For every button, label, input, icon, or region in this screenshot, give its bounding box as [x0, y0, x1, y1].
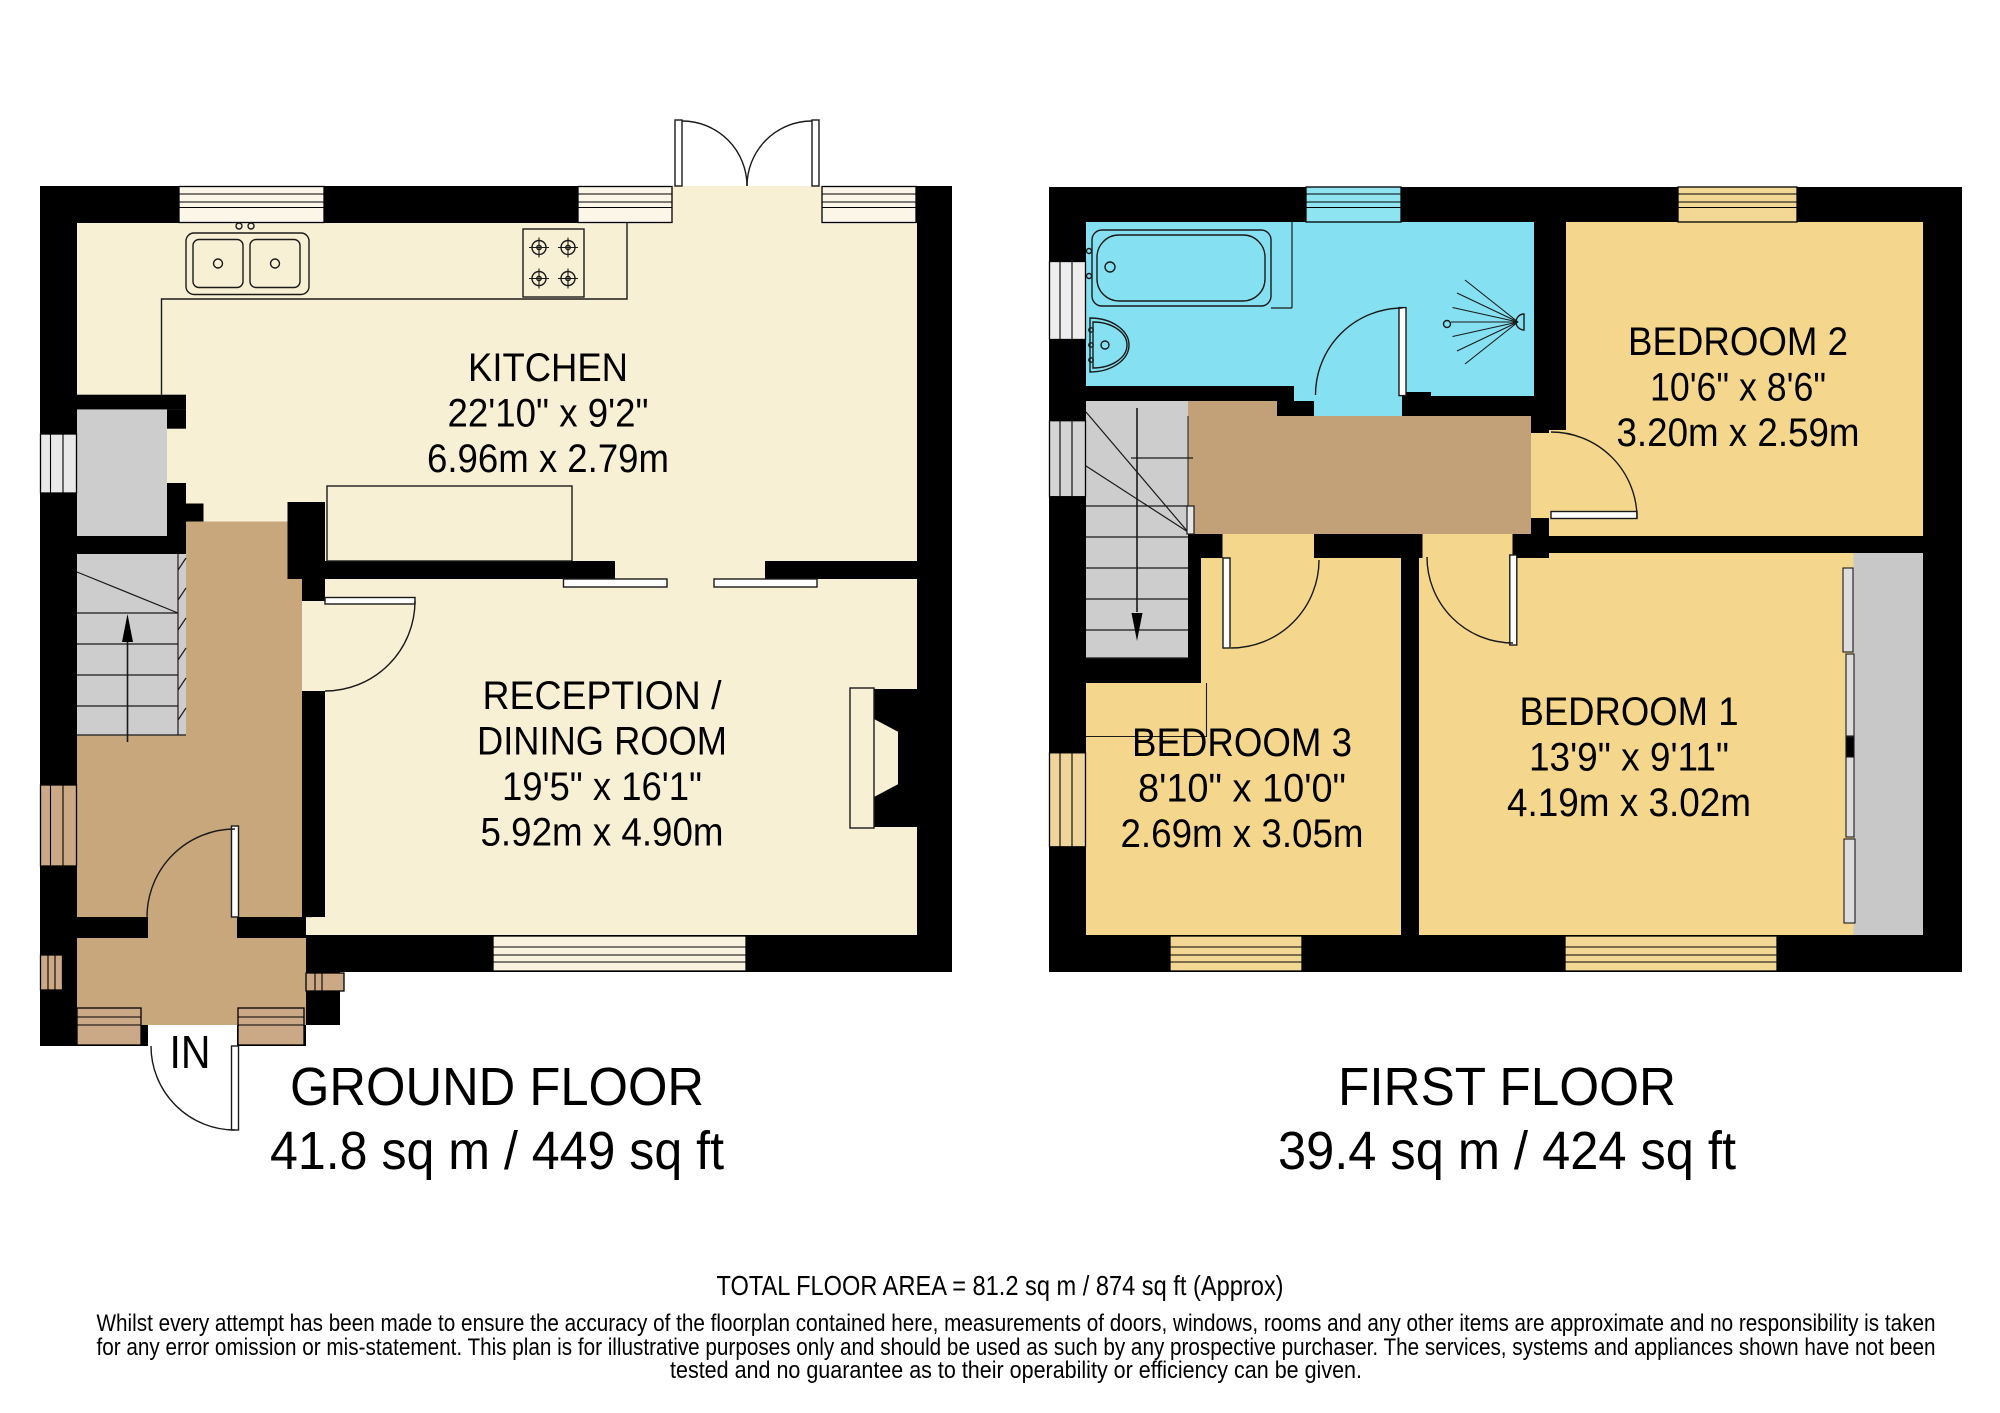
svg-text:tested and no guarantee as to: tested and no guarantee as to their oper…: [670, 1357, 1362, 1384]
svg-text:22'10" x 9'2": 22'10" x 9'2": [448, 392, 649, 436]
svg-text:BEDROOM 2: BEDROOM 2: [1628, 320, 1848, 364]
svg-text:4.19m x 3.02m: 4.19m x 3.02m: [1507, 781, 1751, 825]
svg-text:5.92m x 4.90m: 5.92m x 4.90m: [481, 811, 724, 855]
svg-text:41.8 sq m / 449 sq ft: 41.8 sq m / 449 sq ft: [270, 1121, 724, 1181]
svg-text:IN: IN: [170, 1026, 211, 1078]
svg-text:BEDROOM 3: BEDROOM 3: [1132, 721, 1352, 765]
svg-text:DINING ROOM: DINING ROOM: [477, 720, 727, 764]
svg-text:GROUND FLOOR: GROUND FLOOR: [290, 1057, 704, 1117]
svg-text:6.96m x 2.79m: 6.96m x 2.79m: [427, 437, 669, 481]
svg-text:TOTAL FLOOR AREA = 81.2 sq m /: TOTAL FLOOR AREA = 81.2 sq m / 874 sq ft…: [717, 1270, 1284, 1301]
svg-text:8'10" x 10'0": 8'10" x 10'0": [1138, 767, 1346, 811]
svg-text:KITCHEN: KITCHEN: [468, 346, 628, 390]
svg-text:RECEPTION /: RECEPTION /: [483, 674, 723, 718]
svg-text:13'9" x 9'11": 13'9" x 9'11": [1529, 736, 1729, 780]
svg-text:3.20m x 2.59m: 3.20m x 2.59m: [1617, 411, 1860, 455]
svg-text:19'5" x 16'1": 19'5" x 16'1": [502, 765, 702, 809]
svg-text:10'6" x 8'6": 10'6" x 8'6": [1650, 366, 1826, 410]
svg-text:BEDROOM 1: BEDROOM 1: [1520, 690, 1739, 734]
svg-text:FIRST FLOOR: FIRST FLOOR: [1338, 1057, 1676, 1117]
svg-text:39.4 sq m / 424 sq ft: 39.4 sq m / 424 sq ft: [1278, 1121, 1736, 1181]
svg-text:Whilst every attempt has been: Whilst every attempt has been made to en…: [97, 1310, 1936, 1337]
svg-text:2.69m x 3.05m: 2.69m x 3.05m: [1121, 812, 1364, 856]
